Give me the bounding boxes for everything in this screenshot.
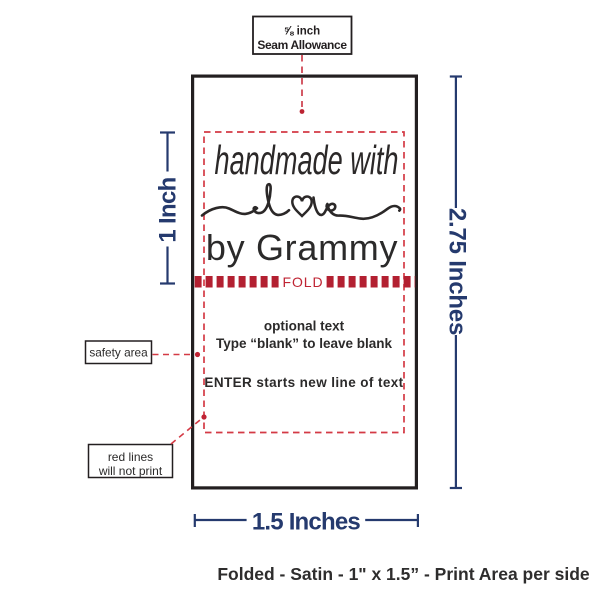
svg-text:will not print: will not print bbox=[98, 464, 163, 478]
svg-text:Seam Allowance: Seam Allowance bbox=[257, 38, 347, 52]
svg-text:handmade with: handmade with bbox=[215, 137, 399, 183]
svg-text:⅝ inch: ⅝ inch bbox=[284, 26, 320, 38]
svg-text:red lines: red lines bbox=[108, 450, 153, 464]
svg-text:1 Inch: 1 Inch bbox=[155, 177, 182, 242]
svg-text:safety area: safety area bbox=[89, 346, 148, 360]
svg-text:2.75 Inches: 2.75 Inches bbox=[444, 208, 471, 335]
svg-text:ENTER starts new line of text: ENTER starts new line of text bbox=[204, 375, 403, 390]
svg-text:Type “blank” to leave blank: Type “blank” to leave blank bbox=[216, 336, 393, 351]
svg-text:by Grammy: by Grammy bbox=[206, 227, 398, 268]
svg-text:Folded - Satin - 1" x 1.5” - P: Folded - Satin - 1" x 1.5” - Print Area … bbox=[217, 564, 590, 584]
svg-text:1.5 Inches: 1.5 Inches bbox=[252, 509, 361, 536]
svg-text:FOLD: FOLD bbox=[283, 274, 324, 290]
svg-text:optional text: optional text bbox=[264, 319, 345, 334]
